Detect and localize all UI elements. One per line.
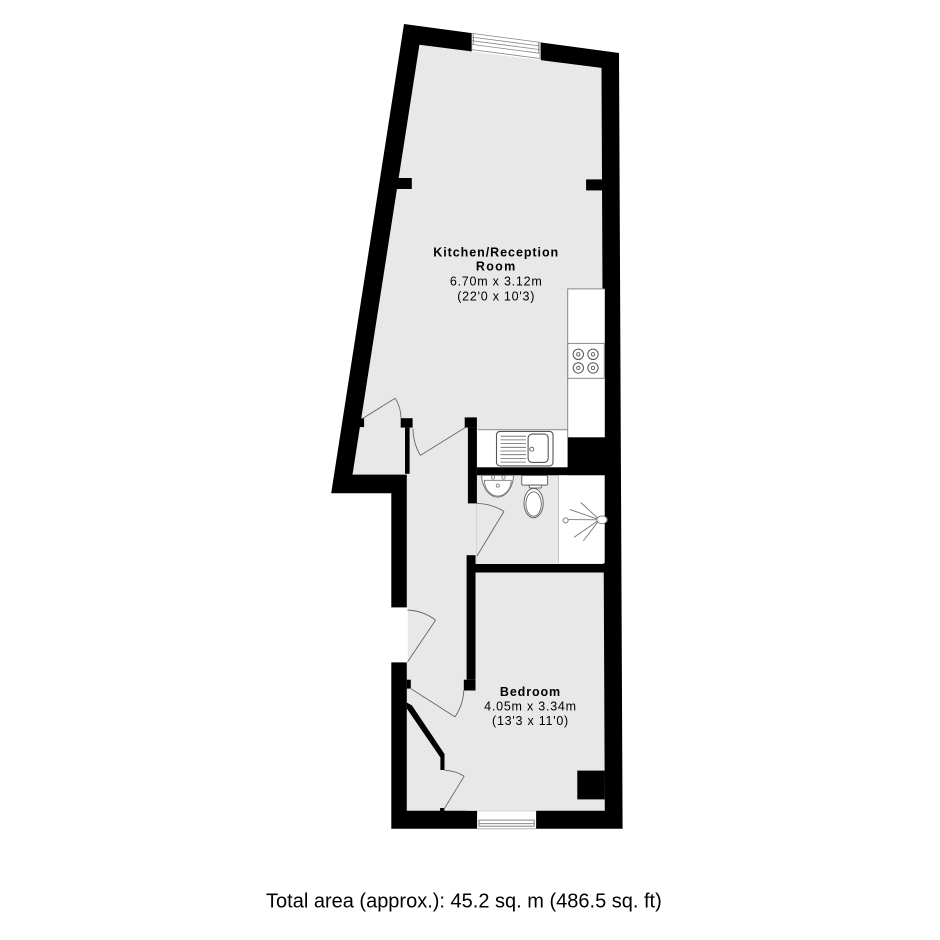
svg-text:Total area (approx.): 45.2 sq.: Total area (approx.): 45.2 sq. m (486.5 … xyxy=(266,891,662,913)
svg-text:Room: Room xyxy=(476,260,517,274)
svg-text:(22'0 x 10'3): (22'0 x 10'3) xyxy=(457,289,535,303)
svg-text:4.05m x 3.34m: 4.05m x 3.34m xyxy=(484,700,577,714)
svg-text:Bedroom: Bedroom xyxy=(500,685,561,699)
svg-text:(13'3 x 11'0): (13'3 x 11'0) xyxy=(492,714,569,728)
svg-text:Kitchen/Reception: Kitchen/Reception xyxy=(433,245,559,259)
svg-text:6.70m x 3.12m: 6.70m x 3.12m xyxy=(450,275,543,289)
